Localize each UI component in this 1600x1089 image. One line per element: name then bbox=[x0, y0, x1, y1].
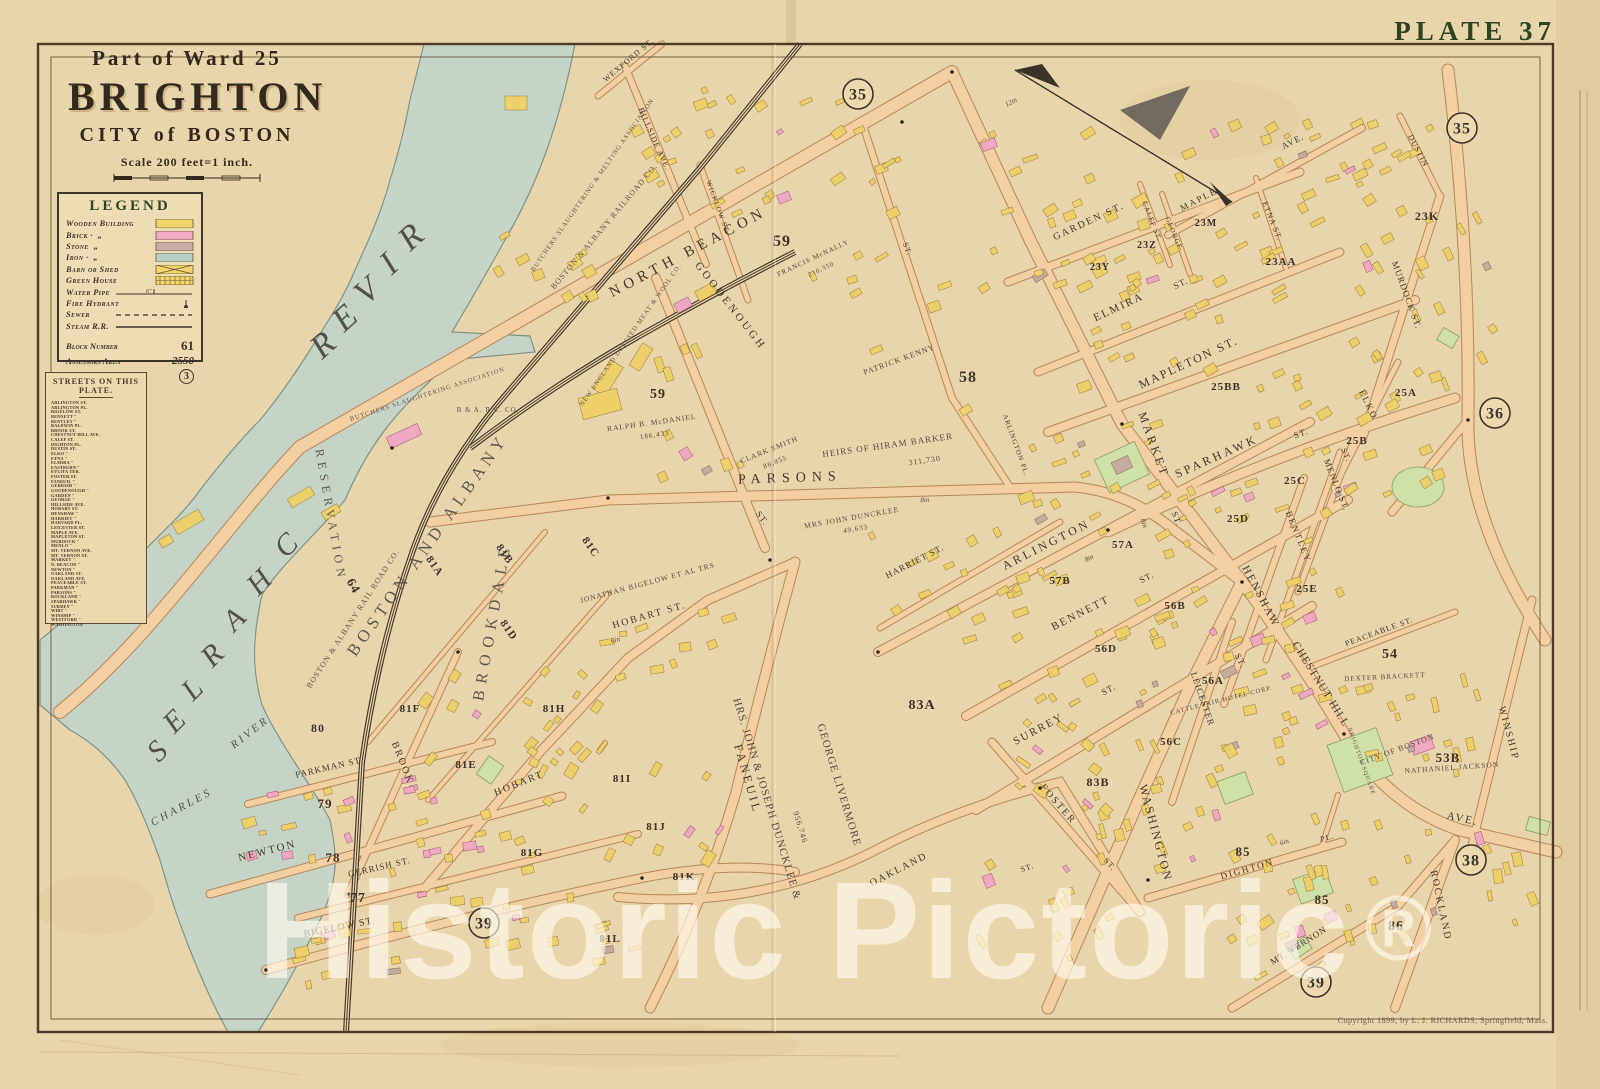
map-label: 86 bbox=[1388, 919, 1404, 934]
building bbox=[1425, 829, 1432, 836]
map-label: 57A bbox=[1112, 539, 1134, 551]
title-block: Part of Ward 25 BRIGHTON CITY of BOSTON … bbox=[68, 46, 306, 183]
map-label: 25C bbox=[1284, 475, 1306, 487]
svg-text:6": 6" bbox=[146, 289, 152, 295]
legend-item: Wooden Building bbox=[66, 218, 194, 229]
map-label: 23Y bbox=[1090, 262, 1110, 273]
pipe-junction-dot bbox=[264, 968, 268, 972]
map-label: 25D bbox=[1227, 513, 1249, 525]
scale-label: Scale 200 feet=1 inch. bbox=[68, 155, 306, 170]
building bbox=[259, 830, 266, 835]
building bbox=[520, 917, 529, 923]
stone-swatch bbox=[150, 242, 194, 251]
map-label: 36 bbox=[1486, 406, 1504, 423]
map-label: 81L bbox=[599, 933, 620, 945]
pipe-junction-dot bbox=[900, 120, 904, 124]
map-label: 58 bbox=[959, 369, 977, 386]
map-label: 25BB bbox=[1211, 381, 1241, 393]
map-label: 83B bbox=[1086, 775, 1109, 789]
barn-swatch bbox=[150, 265, 194, 274]
map-label: 25E bbox=[1296, 583, 1317, 595]
map-label: 81I bbox=[613, 773, 631, 785]
building bbox=[444, 854, 453, 863]
map-label: 81G bbox=[521, 847, 544, 859]
map-label: 85 bbox=[1236, 844, 1251, 859]
wood-swatch bbox=[150, 219, 194, 228]
pipe-junction-dot bbox=[1146, 878, 1150, 882]
building bbox=[1368, 924, 1377, 934]
scale-bar bbox=[112, 173, 262, 183]
sewer-swatch bbox=[150, 310, 194, 319]
map-label: 59 bbox=[650, 387, 666, 402]
legend-extra-area: Assessors Area2550 bbox=[66, 354, 194, 369]
map-label: 8in bbox=[920, 496, 930, 504]
map-label: 57B bbox=[1049, 575, 1070, 587]
pipe-junction-dot bbox=[606, 496, 610, 500]
building bbox=[602, 946, 614, 954]
street-list-item: Washington ″ bbox=[51, 623, 141, 628]
pipe-junction-dot bbox=[640, 876, 644, 880]
legend-item: Steam R.R. bbox=[66, 321, 194, 332]
map-label: 79 bbox=[318, 796, 333, 811]
ward-label: Part of Ward 25 bbox=[68, 46, 306, 71]
building bbox=[391, 956, 401, 964]
legend-item: Green House bbox=[66, 275, 194, 286]
pipe-junction-dot bbox=[1240, 580, 1244, 584]
legend-items: Wooden BuildingBrick · „Stone „Iron · „B… bbox=[66, 218, 194, 332]
building bbox=[679, 642, 692, 652]
building bbox=[305, 980, 312, 989]
building bbox=[619, 631, 627, 637]
map-label: 56C bbox=[1160, 736, 1182, 748]
waterpipe-swatch: 6" bbox=[150, 288, 194, 297]
building bbox=[548, 936, 559, 946]
legend-item: Iron · „ bbox=[66, 252, 194, 263]
legend-item: Brick · „ bbox=[66, 229, 194, 240]
map-label: 81H bbox=[543, 703, 566, 715]
map-label: 78 bbox=[326, 850, 341, 865]
building bbox=[393, 922, 402, 932]
legend-item: Fire Hydrant bbox=[66, 298, 194, 309]
building bbox=[308, 854, 316, 863]
plate-number: PLATE 37 bbox=[1370, 16, 1556, 47]
building bbox=[423, 850, 430, 858]
map-label: 23K bbox=[1415, 209, 1439, 223]
map-label: 56D bbox=[1095, 643, 1117, 655]
map-label: 81E bbox=[455, 759, 476, 771]
greenhouse-swatch bbox=[150, 276, 194, 285]
legend-title: LEGEND bbox=[66, 198, 194, 215]
legend-item: Stone „ bbox=[66, 241, 194, 252]
building bbox=[503, 903, 510, 910]
legend-extra-block: Block Number61 bbox=[66, 339, 194, 354]
building bbox=[470, 897, 483, 907]
building bbox=[462, 841, 476, 851]
map-sheet: BOSTON AND ALBANYBOSTON & ALBANY RAIL RO… bbox=[0, 0, 1600, 1089]
pipe-junction-dot bbox=[456, 650, 460, 654]
legend-item: Barn or Shed bbox=[66, 264, 194, 275]
streets-list-title-2: PLATE. bbox=[51, 386, 141, 395]
building bbox=[593, 957, 606, 966]
map-label: 39 bbox=[1307, 975, 1325, 992]
legend-item: Sewer bbox=[66, 309, 194, 320]
map-label: 83A bbox=[908, 698, 935, 713]
steamrr-swatch bbox=[150, 322, 194, 331]
pipe-junction-dot bbox=[876, 650, 880, 654]
copyright-line: Copyright 1899, by L. J. RICHARDS, Sprin… bbox=[1060, 1016, 1548, 1025]
building bbox=[1493, 869, 1504, 884]
map-label: 81K bbox=[673, 871, 696, 883]
city-label: CITY of BOSTON bbox=[68, 124, 306, 147]
map-label: 35 bbox=[1453, 121, 1471, 138]
map-label: 25B bbox=[1346, 435, 1367, 447]
map-label: 23M bbox=[1195, 218, 1217, 229]
map-label: 81J bbox=[646, 821, 666, 833]
map-title: BRIGHTON bbox=[68, 73, 306, 120]
pipe-junction-dot bbox=[1038, 786, 1042, 790]
building bbox=[1314, 865, 1323, 877]
iron-swatch bbox=[150, 253, 194, 262]
map-label: 54 bbox=[1382, 647, 1398, 662]
divider bbox=[79, 397, 113, 398]
map-label: B & A. R.R. CO. bbox=[457, 406, 520, 414]
hydrant-swatch bbox=[150, 299, 194, 308]
map-label: 35 bbox=[849, 87, 867, 104]
map-label: 56B bbox=[1164, 600, 1185, 612]
map-label: 38 bbox=[1462, 853, 1480, 870]
building bbox=[567, 893, 574, 902]
legend-box: LEGEND Wooden BuildingBrick · „Stone „Ir… bbox=[57, 192, 203, 362]
pipe-junction-dot bbox=[1466, 418, 1470, 422]
map-label: 80 bbox=[311, 721, 325, 735]
building bbox=[430, 797, 438, 804]
map-label: 53B bbox=[1436, 750, 1461, 765]
legend-item: Water Pipe6" bbox=[66, 286, 194, 297]
streets-list-title-1: STREETS ON THIS bbox=[51, 377, 141, 386]
map-label: 81F bbox=[400, 703, 421, 715]
streets-list: Arlington St.Arlington Pl.Bigelow St.Ben… bbox=[51, 401, 141, 628]
map-label: 23AA bbox=[1266, 256, 1297, 268]
pipe-junction-dot bbox=[1106, 528, 1110, 532]
map-label: 23Z bbox=[1137, 240, 1157, 251]
building bbox=[450, 896, 465, 906]
pipe-junction-dot bbox=[1120, 422, 1124, 426]
pipe-junction-dot bbox=[1342, 732, 1346, 736]
brick-swatch bbox=[150, 231, 194, 240]
pipe-junction-dot bbox=[346, 892, 350, 896]
building bbox=[477, 846, 484, 853]
map-label: 56A bbox=[1202, 675, 1224, 687]
pipe-junction-dot bbox=[390, 446, 394, 450]
map-label: 85 bbox=[1315, 892, 1330, 907]
map-label: 25A bbox=[1395, 387, 1417, 399]
streets-list-box: STREETS ON THIS PLATE. Arlington St.Arli… bbox=[45, 372, 147, 624]
building bbox=[505, 96, 527, 110]
building bbox=[1223, 652, 1234, 662]
map-label: 39 bbox=[475, 916, 493, 933]
map-label: 77 bbox=[350, 891, 366, 906]
pipe-junction-dot bbox=[950, 70, 954, 74]
